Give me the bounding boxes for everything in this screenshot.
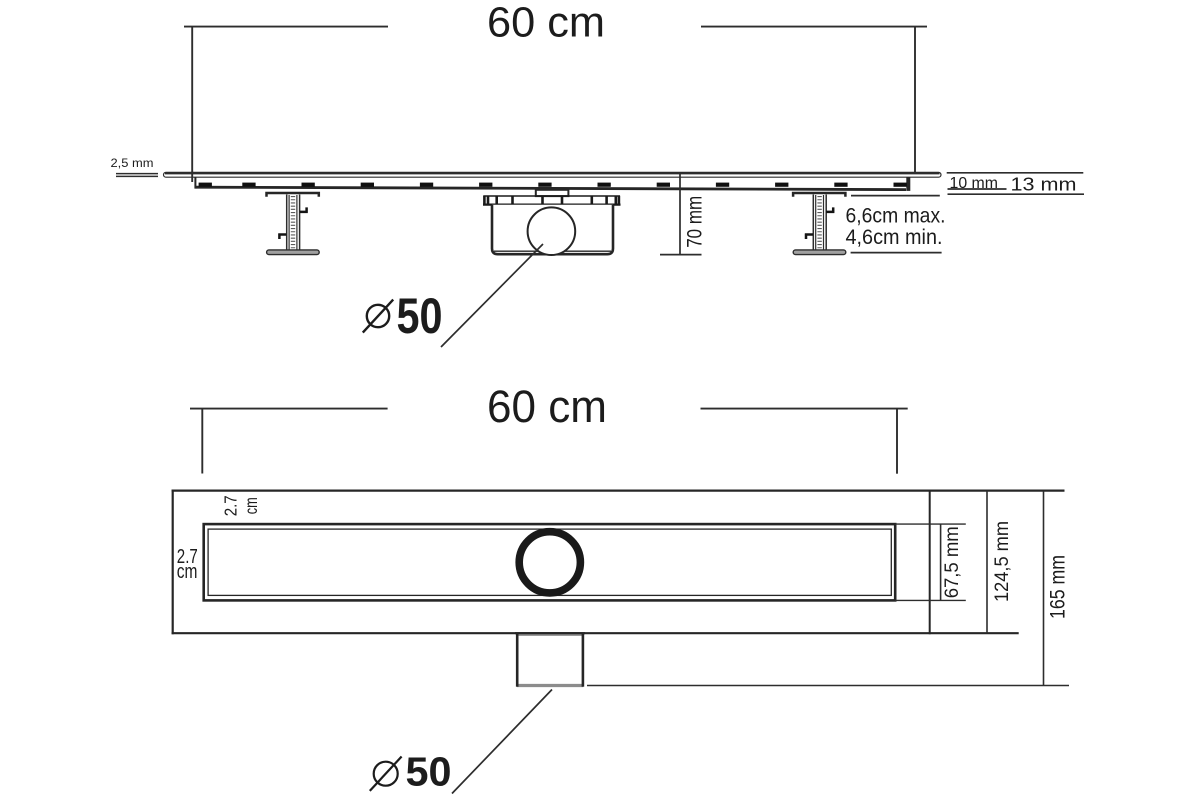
svg-text:70 mm: 70 mm bbox=[683, 196, 707, 248]
svg-text:124,5 mm: 124,5 mm bbox=[991, 521, 1013, 602]
svg-text:2,5 mm: 2,5 mm bbox=[111, 156, 154, 170]
svg-text:cm: cm bbox=[241, 497, 261, 514]
svg-text:13 mm: 13 mm bbox=[1011, 174, 1077, 195]
svg-text:67,5 mm: 67,5 mm bbox=[941, 526, 963, 598]
svg-text:60 cm: 60 cm bbox=[487, 381, 607, 432]
svg-text:60 cm: 60 cm bbox=[487, 0, 605, 47]
svg-text:2.7: 2.7 bbox=[221, 495, 241, 516]
svg-text:50: 50 bbox=[397, 288, 443, 344]
svg-text:cm: cm bbox=[177, 561, 198, 583]
svg-text:165 mm: 165 mm bbox=[1046, 555, 1069, 619]
svg-text:6,6cm max.: 6,6cm max. bbox=[846, 204, 946, 227]
svg-text:4,6cm min.: 4,6cm min. bbox=[846, 226, 943, 249]
svg-text:50: 50 bbox=[406, 749, 452, 795]
